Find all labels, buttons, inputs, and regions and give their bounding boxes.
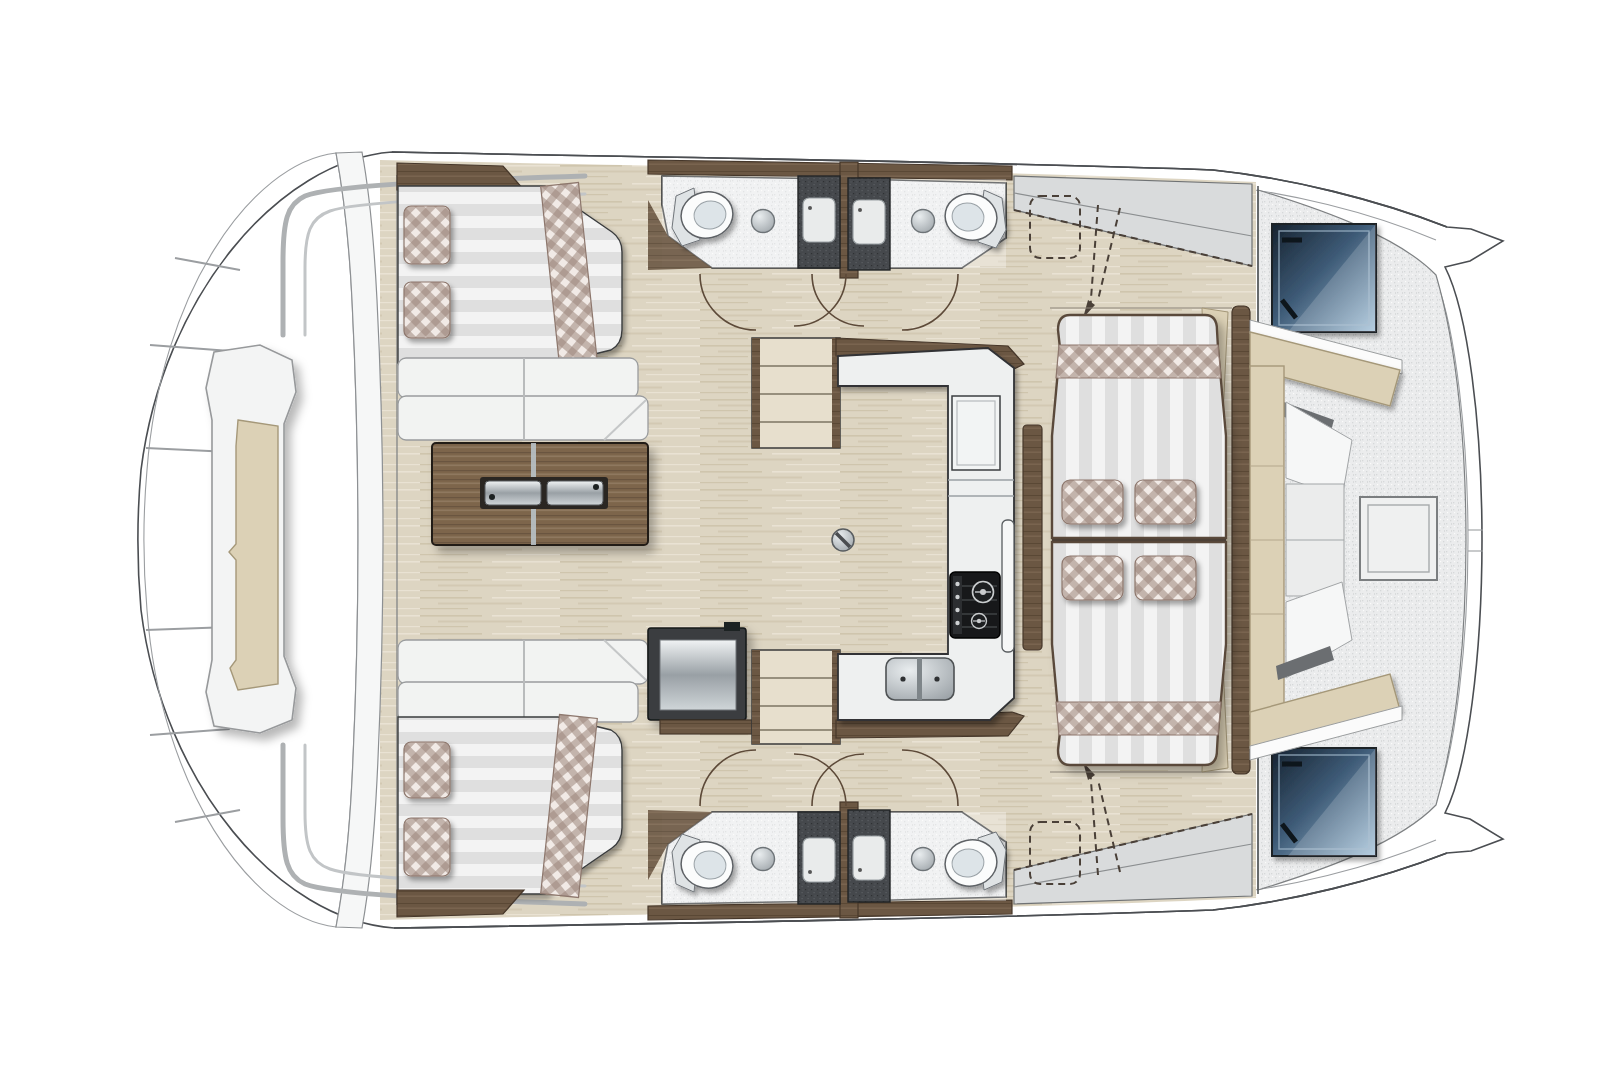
galley-worktop-hatch <box>952 396 1000 470</box>
head-ur-shower <box>848 178 890 270</box>
table-handle-left-latch <box>489 494 495 500</box>
head-ul-basin <box>752 210 775 233</box>
catamaran-floor-plan <box>0 0 1620 1080</box>
cool-box-shelf <box>660 720 752 734</box>
deck-hatch-upper <box>1272 224 1376 332</box>
head-ur-basin <box>912 210 935 233</box>
lounge-plaid-band-lower <box>1056 702 1221 735</box>
sun-lounger-cushion <box>229 420 278 690</box>
sofa-lower-backrest <box>398 682 638 722</box>
sun-lounger <box>206 345 296 733</box>
head-lr-basin <box>912 848 935 871</box>
forward-cockpit <box>1250 186 1466 894</box>
saloon-sofa-lower <box>398 640 648 722</box>
lounge-rail-right <box>1232 306 1250 774</box>
sink-drain-right <box>934 676 939 681</box>
saloon-sofa-upper <box>398 358 648 440</box>
galley-fiddle-rail <box>1002 520 1014 652</box>
head-ul-shower <box>798 176 840 268</box>
saloon-floor-fitting <box>832 529 854 551</box>
sofa-upper-backrest <box>398 358 638 398</box>
head-ll-shower <box>798 812 840 904</box>
lounge-sunbeds <box>1023 306 1250 774</box>
lounge-plaid-band-upper <box>1056 345 1221 378</box>
head-ll-basin <box>752 848 775 871</box>
companionway-lower <box>752 650 840 744</box>
stairs-lower-jamb-left <box>752 650 760 744</box>
berth-upper-pillow-2 <box>404 282 450 338</box>
coachroof-band <box>336 152 383 928</box>
cool-box-handle <box>724 622 740 631</box>
head-lr-shower <box>848 810 890 902</box>
table-handle-right-latch <box>593 484 599 490</box>
berth-lower-pillow-1 <box>404 742 450 798</box>
floor-plan-canvas <box>0 0 1620 1080</box>
cool-box-lid <box>660 640 736 710</box>
sink-divider <box>917 658 922 700</box>
table-handle-left <box>485 481 541 505</box>
berth-lower-pillow-2 <box>404 818 450 876</box>
saloon-table <box>432 443 648 545</box>
sink-drain-left <box>900 676 905 681</box>
stairs-upper-jamb-left <box>752 338 760 448</box>
galley-stove <box>950 572 1000 638</box>
berth-upper-pillow-1 <box>404 206 450 264</box>
deck-hatch-lower <box>1272 748 1376 856</box>
lounge-rail-left <box>1023 425 1042 650</box>
companionway-upper <box>752 338 840 448</box>
cool-box <box>648 622 746 720</box>
stairs-upper-well <box>752 338 840 448</box>
cockpit-floor-hatch <box>1360 497 1437 580</box>
galley-sink <box>886 658 954 700</box>
